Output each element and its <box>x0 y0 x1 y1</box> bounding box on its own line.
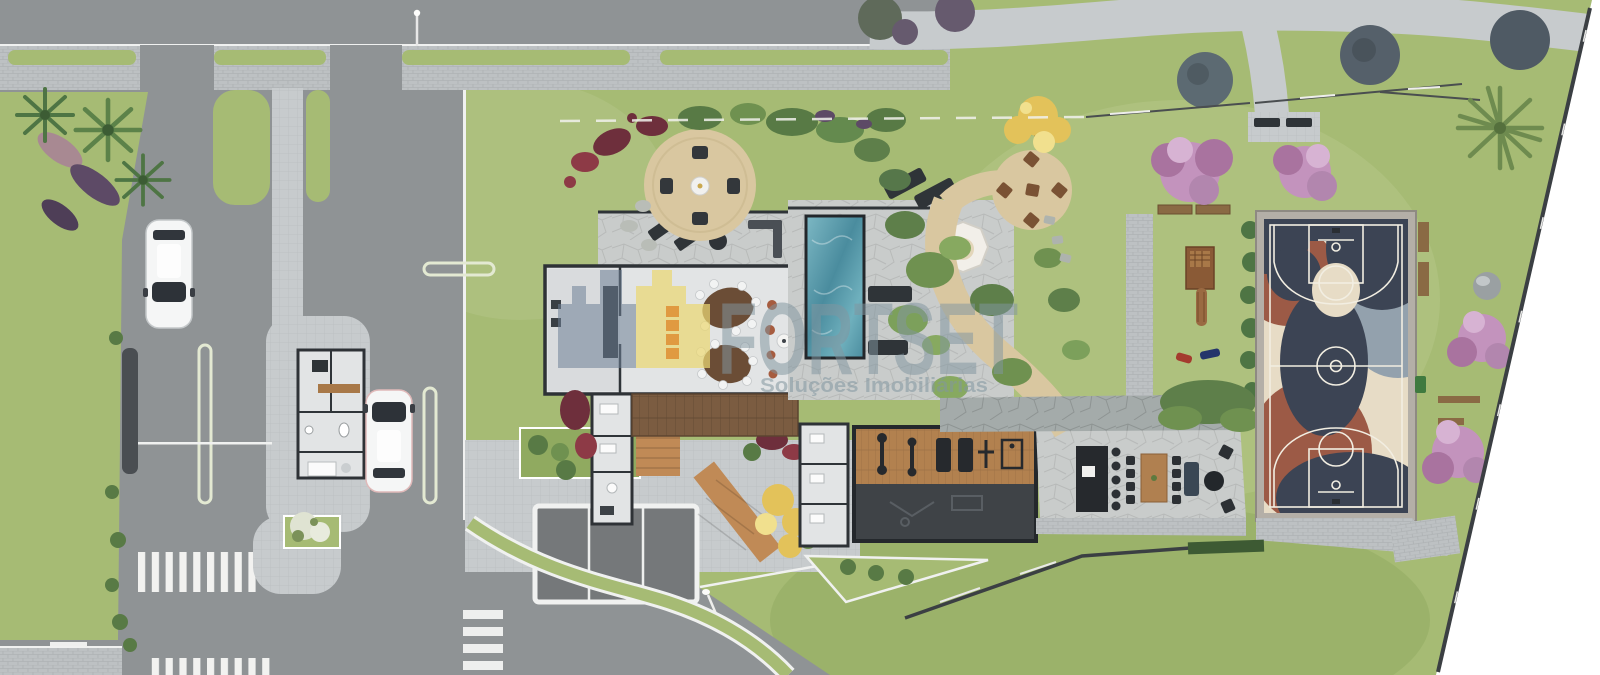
palm-tree-1 <box>17 89 73 141</box>
entry-island-2 <box>306 90 330 202</box>
gatehouse <box>298 350 364 478</box>
wing-fixture-2 <box>600 444 616 453</box>
gatehouse-table <box>308 462 336 476</box>
bottom-left-curb <box>0 646 122 648</box>
gatehouse-toilet <box>339 423 349 437</box>
verge-strip-3 <box>402 50 630 65</box>
verge-strip-4 <box>660 50 948 65</box>
side-bench-1 <box>1418 222 1429 252</box>
gatehouse-desk <box>312 360 328 372</box>
palm-tree-3 <box>116 155 169 204</box>
lounge-table <box>1204 471 1224 491</box>
driveway-apron-1 <box>140 45 214 90</box>
entry-island-1 <box>213 90 270 205</box>
bath-fixture-3 <box>810 514 824 523</box>
firepit-center <box>698 184 703 189</box>
car-entering <box>143 220 195 328</box>
lane-line <box>137 442 272 445</box>
verge-strip-1 <box>8 50 136 65</box>
boundary-wall-bar <box>122 348 138 474</box>
bath-fixture-1 <box>810 434 824 443</box>
boulder <box>1473 272 1501 300</box>
site-plan-rendering: FORTSET Soluções Imobiliárias <box>0 0 1600 675</box>
terrace-sofa-b <box>773 220 782 258</box>
zebra-crosswalk <box>133 552 257 592</box>
dining-terrace-paver-band <box>1036 518 1246 536</box>
wing-fixture-1 <box>600 404 618 414</box>
bar-counter <box>1076 446 1108 512</box>
wood-deck <box>632 394 798 436</box>
park-bench-2 <box>1196 205 1230 214</box>
watermark-tagline: Soluções Imobiliárias <box>760 374 988 397</box>
palm-tree-2 <box>76 100 140 160</box>
top-right-paver-path <box>870 12 1596 34</box>
lounge-sofa <box>1184 462 1199 496</box>
bath-fixture-2 <box>810 474 824 483</box>
alcove-bench-1 <box>1254 118 1280 127</box>
bottom-left-sidewalk <box>0 648 122 675</box>
top-road <box>0 0 950 45</box>
side-bench-2 <box>1418 262 1429 296</box>
wing-fixture-3 <box>607 483 617 493</box>
driveway-apron-2 <box>330 45 402 90</box>
gatehouse-chair <box>341 463 351 473</box>
star-palm <box>1458 88 1542 168</box>
alcove-bench-2 <box>1286 118 1312 127</box>
table-centerpiece <box>1151 475 1157 481</box>
path-branch-to-bench <box>1258 24 1272 114</box>
gatehouse-sink <box>305 426 313 434</box>
park-bench-1 <box>1158 205 1192 214</box>
outdoor-dining <box>1036 424 1246 536</box>
car-exiting <box>363 390 415 492</box>
log-bench-1 <box>1438 396 1480 403</box>
masterplan-svg: FORTSET Soluções Imobiliárias <box>0 0 1600 675</box>
gym-area <box>800 424 1062 546</box>
trash-bin <box>1415 376 1426 393</box>
gatehouse-counter <box>318 384 360 393</box>
park-path <box>1126 214 1153 396</box>
zebra-crosswalk-bottom <box>146 658 270 675</box>
bar-sink <box>1082 466 1095 477</box>
verge-strip-2 <box>214 50 326 65</box>
wing-fixture-4 <box>600 506 614 515</box>
